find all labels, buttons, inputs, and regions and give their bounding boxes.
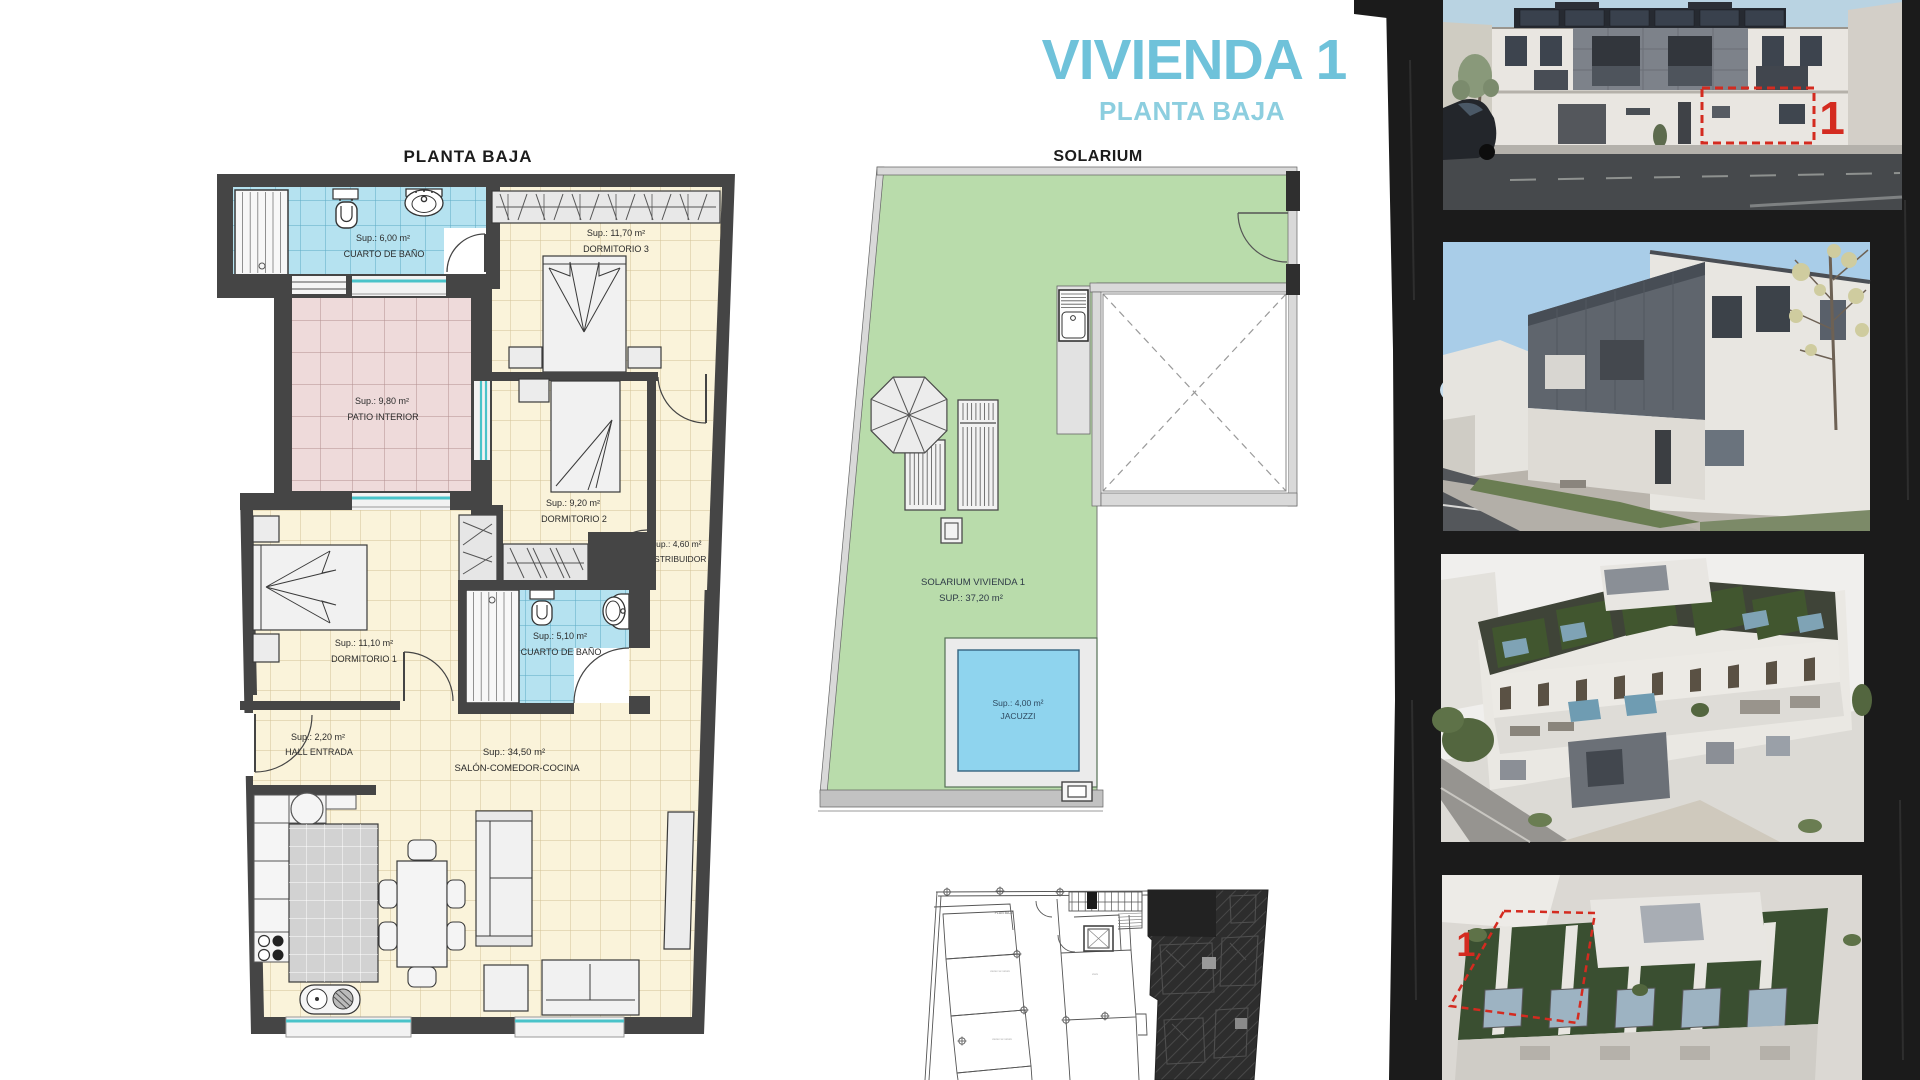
svg-text:HALL ENTRADA: HALL ENTRADA [285,747,353,757]
svg-text:xxxxx xx xxxxx: xxxxx xx xxxxx [990,969,1010,973]
svg-text:DORMITORIO 1: DORMITORIO 1 [331,654,397,664]
svg-text:Sup.: 11,70 m²: Sup.: 11,70 m² [587,228,645,238]
svg-text:xxxxx xx xxxxx: xxxxx xx xxxxx [992,1037,1012,1041]
svg-text:Sup.: 34,50 m²: Sup.: 34,50 m² [483,747,545,758]
svg-text:Sup.: 4,60 m²: Sup.: 4,60 m² [650,539,701,549]
svg-text:PLANTA BAJA: PLANTA BAJA [1099,96,1285,126]
svg-text:PATIO INTERIOR: PATIO INTERIOR [347,412,419,422]
svg-text:xxxx: xxxx [1092,972,1099,976]
svg-text:Sup.: 9,20 m²: Sup.: 9,20 m² [546,498,600,508]
svg-text:SOLARIUM VIVIENDA 1: SOLARIUM VIVIENDA 1 [921,577,1025,588]
svg-text:PLANTA BAJA: PLANTA BAJA [403,147,532,166]
svg-text:SUP.: 37,20 m²: SUP.: 37,20 m² [939,593,1003,604]
svg-text:DORMITORIO 3: DORMITORIO 3 [583,244,649,254]
svg-text:Sup.: 2,20 m²: Sup.: 2,20 m² [291,732,345,742]
svg-text:CUARTO DE BAÑO: CUARTO DE BAÑO [521,647,602,657]
svg-text:SOLARIUM: SOLARIUM [1053,148,1142,165]
svg-text:Sup.: 6,00 m²: Sup.: 6,00 m² [356,233,410,243]
svg-text:Sup.: 9,80 m²: Sup.: 9,80 m² [355,396,409,406]
svg-text:1: 1 [1819,92,1845,144]
svg-text:SALÓN-COMEDOR-COCINA: SALÓN-COMEDOR-COCINA [454,763,580,774]
svg-text:1: 1 [1457,926,1476,964]
svg-text:Sup.: 11,10 m²: Sup.: 11,10 m² [335,638,393,648]
svg-text:JACUZZI: JACUZZI [1001,711,1036,721]
svg-text:Sup.: 4,00 m²: Sup.: 4,00 m² [992,698,1043,708]
svg-text:PLAN BAJA: PLAN BAJA [995,911,1015,915]
svg-text:DORMITORIO 2: DORMITORIO 2 [541,514,607,524]
svg-text:CUARTO DE BAÑO: CUARTO DE BAÑO [344,249,425,259]
svg-text:Sup.: 5,10 m²: Sup.: 5,10 m² [533,631,587,641]
svg-text:VIVIENDA 1: VIVIENDA 1 [1042,28,1347,92]
